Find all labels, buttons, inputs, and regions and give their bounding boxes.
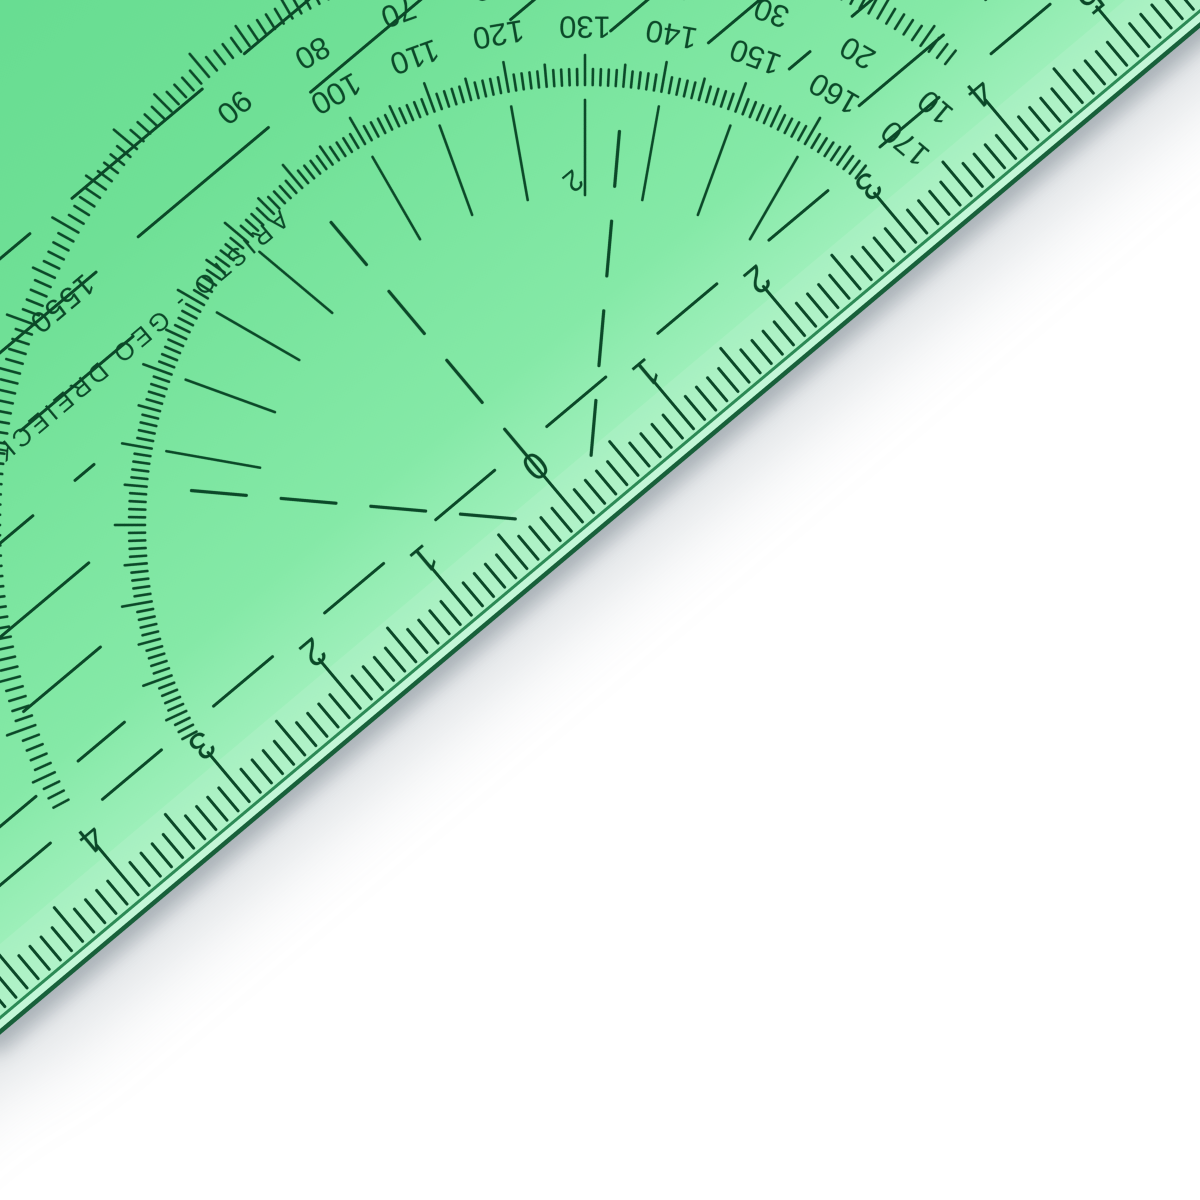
product-photo: 1234512341020304050607080901701601501401… (0, 0, 1200, 1200)
geodreieck-photo: 1234512341020304050607080901701601501401… (0, 0, 1200, 1200)
triangle-face (0, 0, 1200, 1200)
geo-triangle: 1234512341020304050607080901701601501401… (0, 0, 1200, 1200)
scale-label: 130 (559, 9, 611, 44)
